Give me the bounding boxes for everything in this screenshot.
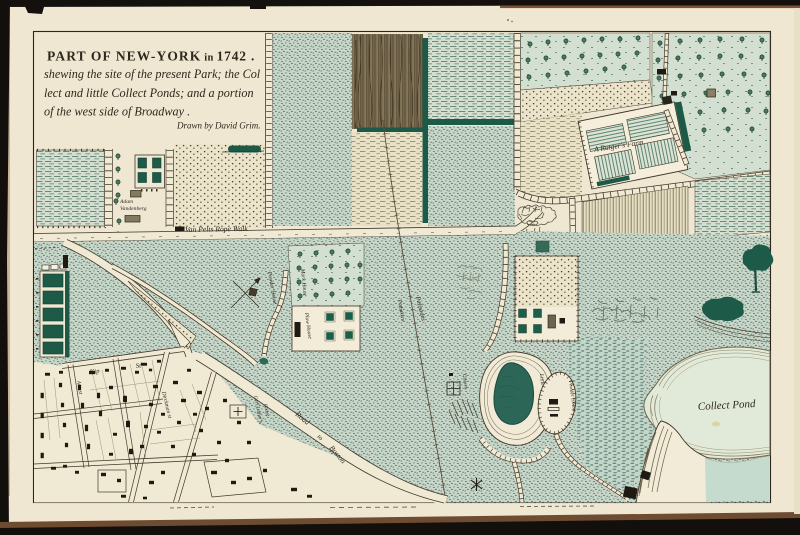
svg-text:Van Pelts Rope Walk: Van Pelts Rope Walk bbox=[185, 224, 249, 234]
svg-text:PART OF NEW-YORK in 1742 .: PART OF NEW-YORK in 1742 . bbox=[47, 49, 255, 64]
svg-text:Adam: Adam bbox=[119, 199, 133, 205]
svg-text:shewing the site of the presen: shewing the site of the present Park; th… bbox=[44, 67, 261, 81]
svg-text:Vandenberg: Vandenberg bbox=[120, 206, 147, 212]
svg-text:Drawn by David Grim.: Drawn by David Grim. bbox=[176, 121, 261, 131]
svg-text:of the west side of Broadway .: of the west side of Broadway . bbox=[44, 105, 190, 119]
svg-text:lect and little Collect Ponds;: lect and little Collect Ponds; and a por… bbox=[44, 86, 254, 100]
